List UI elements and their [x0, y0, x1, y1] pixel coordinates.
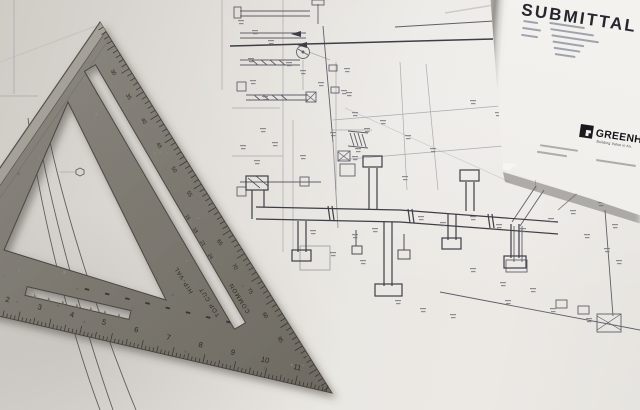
speed-square: 2345678910113035404550556570758085151821… [0, 0, 640, 410]
photo-scene: SUBMITTAL GREENHECK Building Value in Ai… [0, 0, 640, 410]
